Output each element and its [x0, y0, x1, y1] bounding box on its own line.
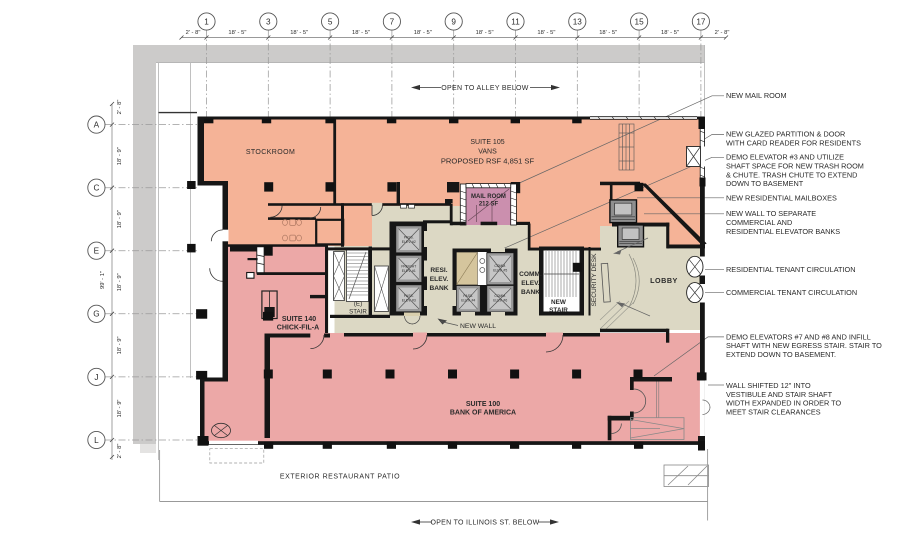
- svg-text:NEW GLAZED PARTITION & DOOR: NEW GLAZED PARTITION & DOOR: [726, 130, 845, 139]
- svg-text:18' - 9": 18' - 9": [117, 400, 123, 418]
- svg-text:ELEV. #6: ELEV. #6: [493, 298, 507, 302]
- svg-text:18' - 5": 18' - 5": [414, 30, 432, 36]
- svg-text:SUITE 105: SUITE 105: [470, 139, 504, 146]
- svg-text:NEW WALL: NEW WALL: [460, 323, 496, 330]
- svg-text:NEW RESIDENTIAL MAILBOXES: NEW RESIDENTIAL MAILBOXES: [726, 194, 837, 203]
- svg-text:STAIR: STAIR: [549, 307, 568, 314]
- svg-text:PROPOSED RSF 4,851 SF: PROPOSED RSF 4,851 SF: [441, 156, 535, 165]
- svg-text:COMM.: COMM.: [494, 264, 506, 268]
- svg-text:E: E: [94, 247, 100, 256]
- svg-text:ELEV. #1: ELEV. #1: [402, 269, 416, 273]
- svg-text:PASS.: PASS.: [404, 294, 414, 298]
- svg-text:STAIR: STAIR: [349, 309, 367, 316]
- svg-text:SHAFT SPACE FOR NEW TRASH ROOM: SHAFT SPACE FOR NEW TRASH ROOM: [726, 162, 864, 171]
- svg-text:2' - 8": 2' - 8": [186, 30, 201, 36]
- svg-text:DOWN TO BASEMENT: DOWN TO BASEMENT: [726, 179, 804, 188]
- svg-text:ELEV.: ELEV.: [521, 280, 540, 287]
- svg-text:18' - 9": 18' - 9": [117, 336, 123, 354]
- svg-text:11: 11: [511, 17, 520, 26]
- svg-text:EXTEND DOWN TO BASEMENT.: EXTEND DOWN TO BASEMENT.: [726, 350, 836, 359]
- svg-text:ELEV. #5: ELEV. #5: [493, 268, 507, 272]
- svg-text:MEET STAIR CLEARANCES: MEET STAIR CLEARANCES: [726, 408, 821, 417]
- svg-text:OPEN TO ALLEY BELOW: OPEN TO ALLEY BELOW: [441, 85, 528, 92]
- svg-text:CHICK-FIL-A: CHICK-FIL-A: [277, 325, 319, 332]
- svg-text:LOBBY: LOBBY: [650, 276, 678, 285]
- svg-text:5: 5: [328, 17, 333, 26]
- svg-text:J: J: [94, 373, 98, 382]
- svg-text:2' - 8": 2' - 8": [117, 444, 123, 459]
- svg-text:L: L: [94, 436, 99, 445]
- svg-text:WIDTH EXPANDED IN ORDER TO: WIDTH EXPANDED IN ORDER TO: [726, 399, 841, 408]
- svg-text:STOCKROOM: STOCKROOM: [246, 149, 295, 156]
- svg-text:ELEV. #4: ELEV. #4: [461, 298, 475, 302]
- svg-text:C: C: [93, 184, 99, 193]
- svg-text:17: 17: [696, 17, 706, 26]
- svg-text:FREIGHT: FREIGHT: [401, 265, 416, 269]
- svg-text:WITH CARD READER FOR RESIDENTS: WITH CARD READER FOR RESIDENTS: [726, 139, 861, 148]
- svg-text:RESI.: RESI.: [430, 267, 447, 274]
- svg-text:COMMERCIAL AND: COMMERCIAL AND: [726, 218, 792, 227]
- svg-text:SUITE 100: SUITE 100: [466, 401, 500, 408]
- svg-text:DEMO ELEVATOR #3 AND UTILIZE: DEMO ELEVATOR #3 AND UTILIZE: [726, 153, 844, 162]
- svg-text:(E): (E): [354, 301, 362, 308]
- svg-text:NEW: NEW: [551, 299, 567, 306]
- svg-text:18' - 5": 18' - 5": [228, 30, 246, 36]
- svg-text:VANS: VANS: [478, 149, 497, 156]
- svg-text:13: 13: [573, 17, 583, 26]
- svg-text:18' - 5": 18' - 5": [599, 30, 617, 36]
- svg-text:18' - 5": 18' - 5": [476, 30, 494, 36]
- svg-text:RESIDENTIAL TENANT CIRCULATION: RESIDENTIAL TENANT CIRCULATION: [726, 265, 855, 274]
- svg-text:DEMO ELEVATORS #7 AND #8 AND I: DEMO ELEVATORS #7 AND #8 AND INFILL: [726, 332, 871, 341]
- svg-text:A: A: [94, 121, 100, 130]
- svg-text:3: 3: [266, 17, 271, 26]
- svg-text:18' - 5": 18' - 5": [352, 30, 370, 36]
- svg-text:BANK OF AMERICA: BANK OF AMERICA: [450, 410, 516, 417]
- svg-text:15: 15: [635, 17, 645, 26]
- svg-text:MAIL ROOM: MAIL ROOM: [471, 194, 506, 200]
- svg-text:NEW WALL TO SEPARATE: NEW WALL TO SEPARATE: [726, 209, 816, 218]
- svg-text:PASS.: PASS.: [404, 236, 414, 240]
- svg-text:1: 1: [204, 17, 209, 26]
- svg-text:ELEV.: ELEV.: [430, 276, 449, 283]
- svg-text:212 SF: 212 SF: [479, 202, 499, 208]
- svg-text:NEW MAIL ROOM: NEW MAIL ROOM: [726, 91, 787, 100]
- svg-text:2' - 8": 2' - 8": [715, 30, 730, 36]
- svg-text:SHAFT WITH NEW EGRESS STAIR.: SHAFT WITH NEW EGRESS STAIR. STAIR TO: [726, 341, 882, 350]
- svg-text:COMM.: COMM.: [519, 271, 542, 278]
- svg-text:BANK: BANK: [429, 285, 448, 292]
- svg-text:7: 7: [390, 17, 395, 26]
- svg-text:18' - 9": 18' - 9": [117, 210, 123, 228]
- svg-text:EXTERIOR RESTAURANT PATIO: EXTERIOR RESTAURANT PATIO: [280, 474, 400, 481]
- svg-text:SECURITY DESK: SECURITY DESK: [591, 253, 598, 307]
- svg-text:ELEV. #2: ELEV. #2: [402, 240, 416, 244]
- svg-text:99' - 1": 99' - 1": [100, 271, 106, 289]
- svg-text:G: G: [93, 310, 99, 319]
- svg-text:COMM.: COMM.: [494, 294, 506, 298]
- svg-text:& CHUTE. TRASH CHUTE TO EXTEN: & CHUTE. TRASH CHUTE TO EXTEND: [726, 170, 857, 179]
- svg-text:18' - 5": 18' - 5": [537, 30, 555, 36]
- svg-text:18' - 5": 18' - 5": [661, 30, 679, 36]
- svg-text:PASS.: PASS.: [463, 294, 473, 298]
- svg-text:VESTIBULE AND STAIR SHAFT: VESTIBULE AND STAIR SHAFT: [726, 390, 833, 399]
- svg-text:SUITE 140: SUITE 140: [282, 316, 316, 323]
- svg-text:WALL SHIFTED 12" INTO: WALL SHIFTED 12" INTO: [726, 381, 811, 390]
- svg-text:RESIDENTIAL ELEVATOR BANKS: RESIDENTIAL ELEVATOR BANKS: [726, 227, 840, 236]
- svg-text:BANK: BANK: [521, 289, 540, 296]
- svg-text:18' - 5": 18' - 5": [290, 30, 308, 36]
- svg-text:OPEN TO ILLINOIS ST. BELOW: OPEN TO ILLINOIS ST. BELOW: [430, 520, 539, 527]
- svg-text:9: 9: [451, 17, 456, 26]
- svg-text:2' - 8": 2' - 8": [117, 100, 123, 115]
- svg-text:ELEV. #3: ELEV. #3: [402, 298, 416, 302]
- svg-text:18' - 9": 18' - 9": [117, 147, 123, 165]
- svg-text:COMMERCIAL TENANT CIRCULATION: COMMERCIAL TENANT CIRCULATION: [726, 288, 857, 297]
- svg-text:18' - 9": 18' - 9": [117, 273, 123, 291]
